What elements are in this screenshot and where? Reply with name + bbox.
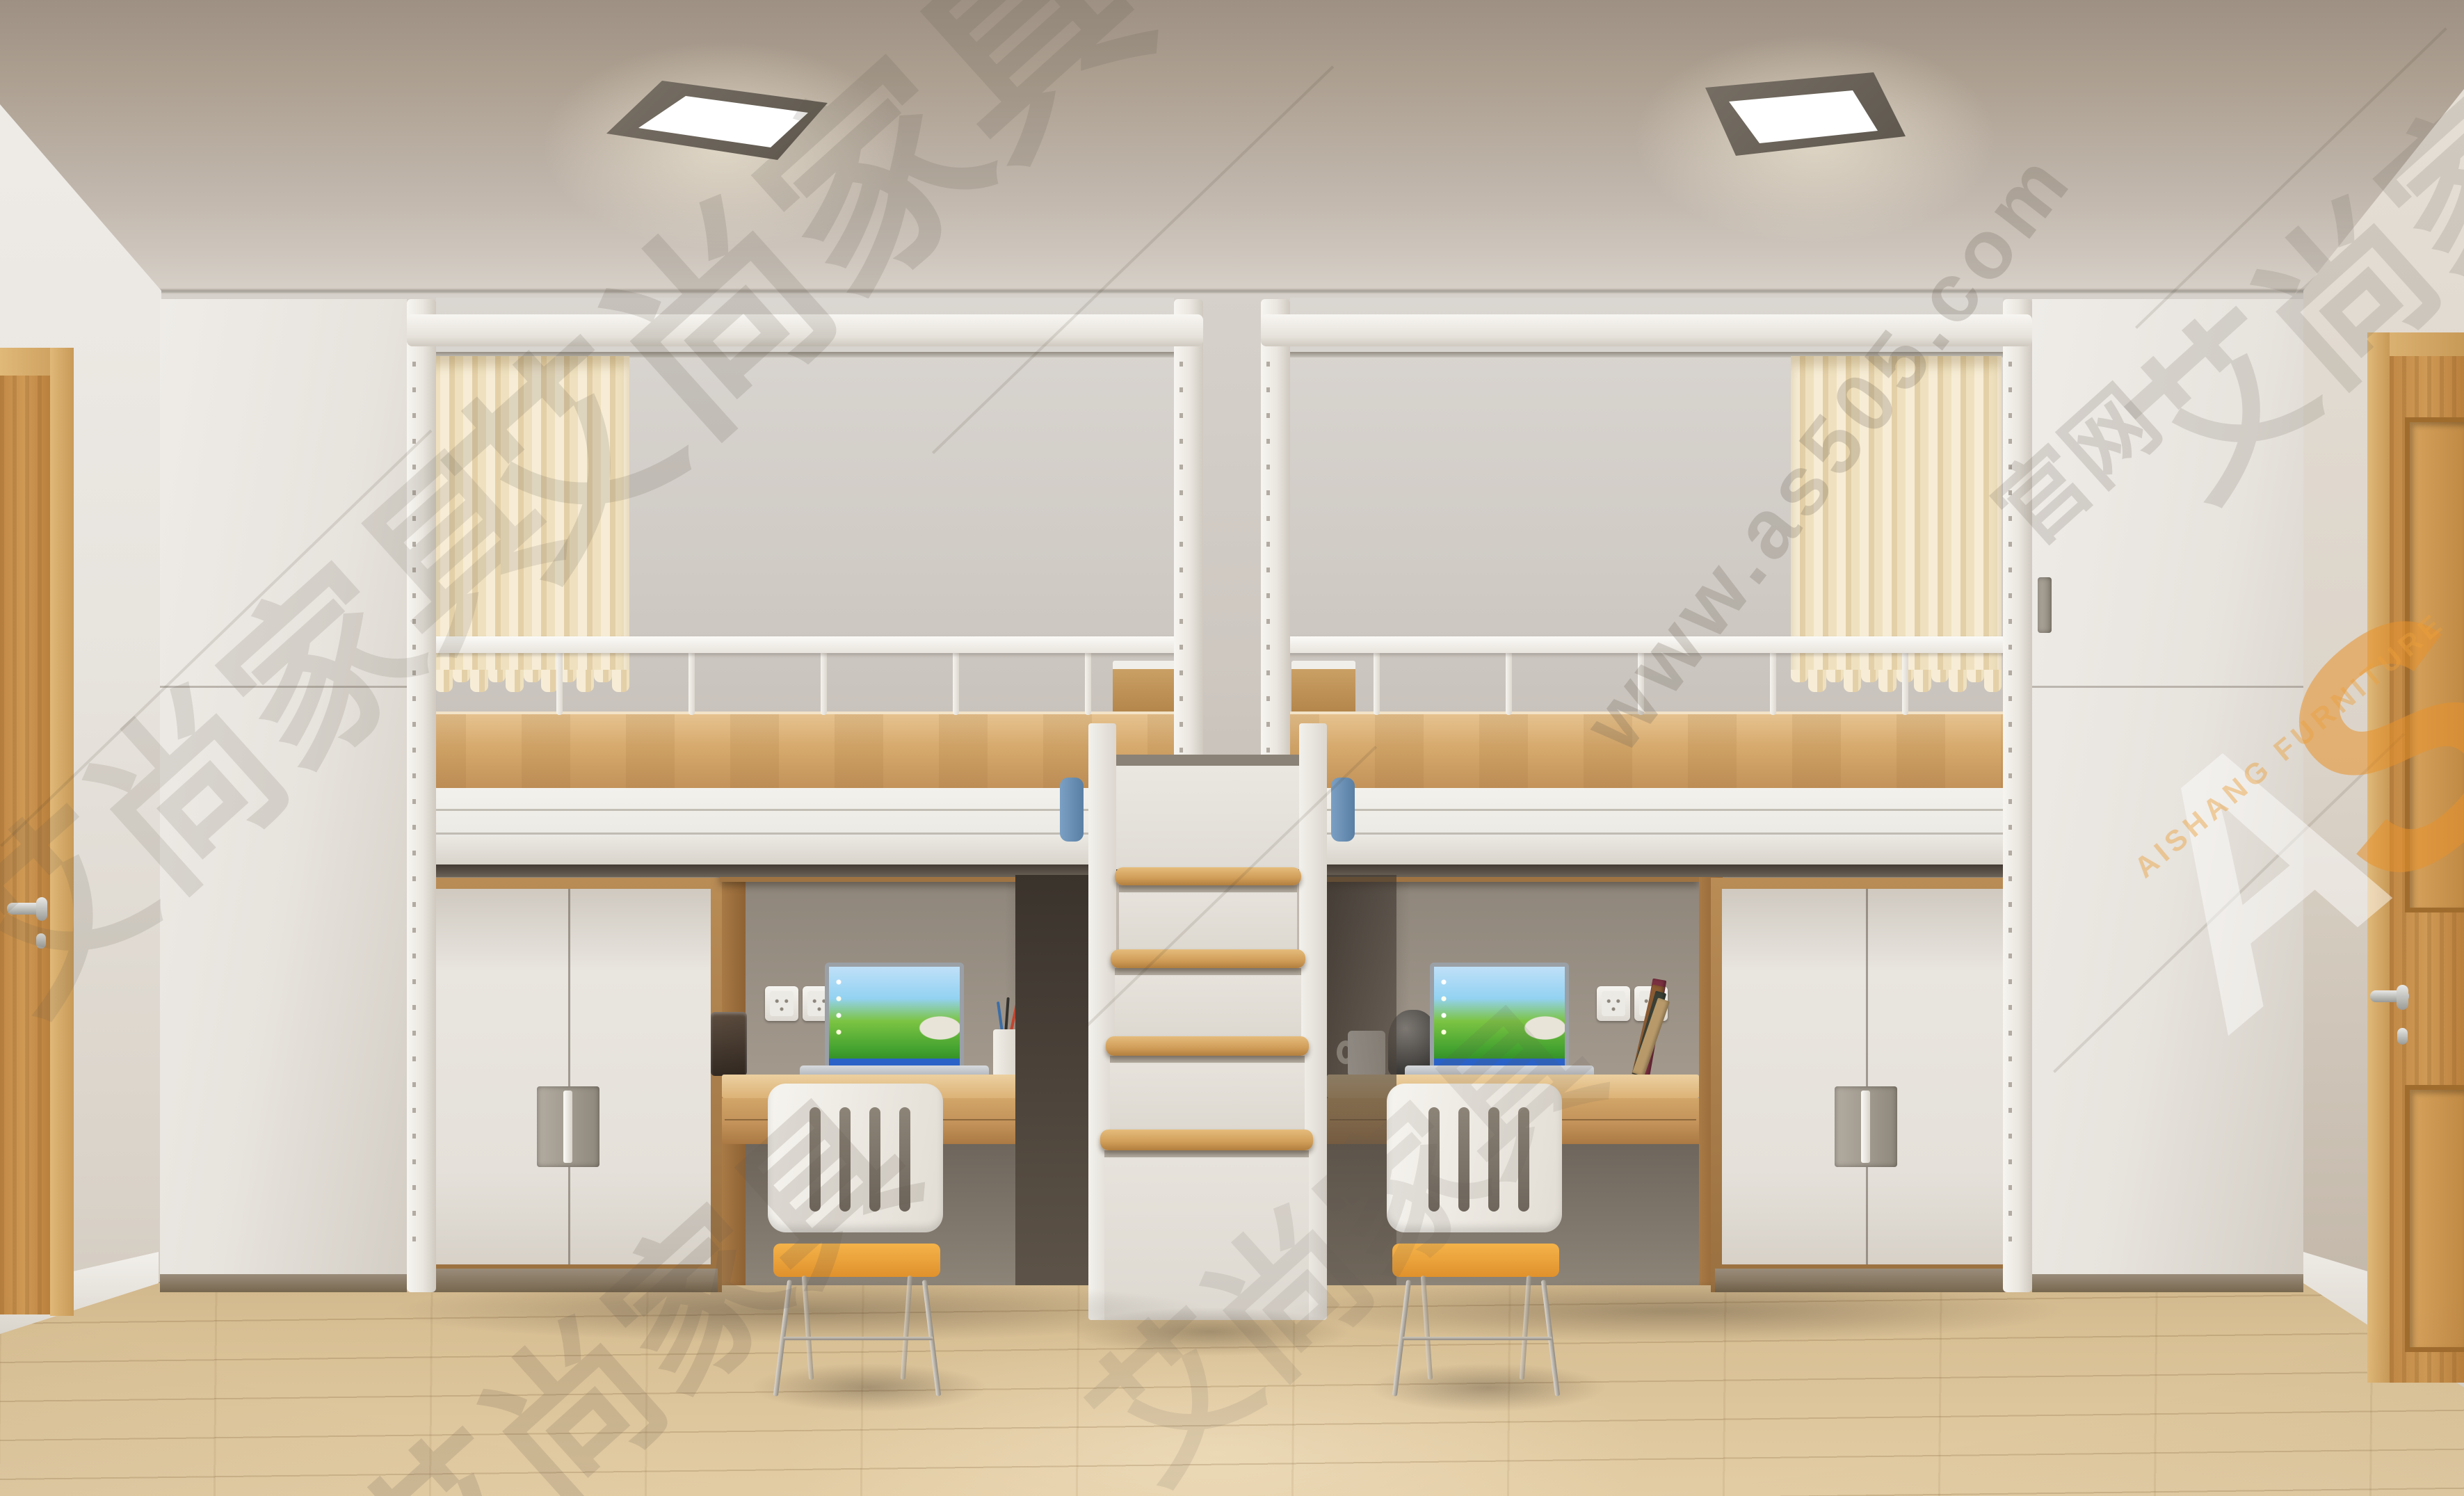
- vignette-overlay: [0, 0, 2464, 1496]
- dorm-room-rendering: THE ART BOOKEURODECO NESCAFE: [0, 0, 2464, 1496]
